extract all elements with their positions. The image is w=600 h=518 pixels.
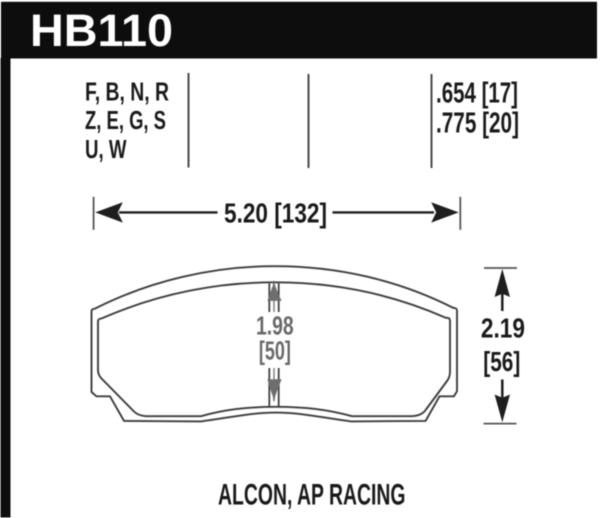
svg-text:.775 [20]: .775 [20] [436,108,519,140]
svg-text:[56]: [56] [483,346,520,377]
svg-text:ALCON, AP RACING: ALCON, AP RACING [218,478,406,511]
svg-text:2.19: 2.19 [481,312,525,343]
svg-text:HB110: HB110 [30,5,173,56]
svg-text:.654 [17]: .654 [17] [436,78,518,110]
svg-text:[50]: [50] [259,336,291,366]
svg-text:5.20 [132]: 5.20 [132] [224,198,327,229]
svg-text:Z, E, G, S: Z, E, G, S [85,105,166,135]
svg-text:U, W: U, W [85,134,127,164]
svg-text:F, B, N, R: F, B, N, R [85,76,169,106]
